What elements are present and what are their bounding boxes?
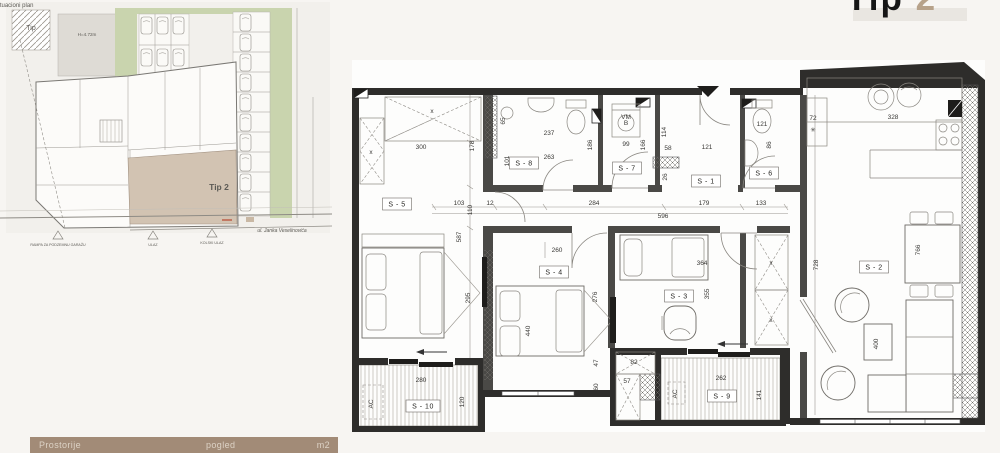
- dimension-label: 114: [661, 126, 668, 137]
- dimension-label: 26: [662, 173, 669, 181]
- svg-text:S - 1: S - 1: [697, 179, 714, 186]
- room-label-s9: S - 9: [708, 390, 737, 402]
- dimension-label: 72: [809, 115, 817, 122]
- dimension-label: 766: [915, 244, 922, 255]
- tip2-unit-label: Tip 2: [209, 182, 229, 192]
- dimension-label: 276: [592, 291, 599, 302]
- room-label-s7: S - 7: [613, 162, 642, 174]
- height-note: H=4.72m: [78, 32, 97, 37]
- dimension-label: 178: [469, 140, 476, 151]
- dimension-label: 47: [593, 359, 600, 367]
- dimension-label: 99: [622, 141, 630, 148]
- dimension-label: 133: [756, 200, 767, 207]
- tv-icon: [482, 257, 487, 307]
- parcel-label: Tip: [26, 25, 36, 32]
- legend-label-gate: KOLSKI ULAZ: [200, 241, 224, 245]
- dimension-label: ✳: [810, 126, 816, 134]
- neighbor-building: H=4.72m: [58, 14, 116, 76]
- svg-text:S - 9: S - 9: [713, 394, 730, 401]
- hatched-parcel: Tip: [12, 10, 50, 50]
- dimension-label: 57: [623, 378, 631, 385]
- room-label-s3: S - 3: [665, 290, 694, 302]
- site-plan-title: Situacioni plan: [0, 3, 34, 9]
- dimension-label: 237: [544, 130, 555, 137]
- armchair-2: [821, 366, 855, 400]
- dimension-label: 179: [699, 200, 710, 207]
- dimension-label: 186: [587, 139, 594, 150]
- room-label-s2: S - 2: [860, 261, 889, 273]
- svg-text:S - 7: S - 7: [618, 166, 635, 173]
- dimension-label: 328: [888, 114, 899, 121]
- room-label-s5: S - 5: [383, 198, 412, 210]
- dimension-label: 587: [456, 231, 463, 242]
- dimension-label: 295: [465, 292, 472, 303]
- svg-text:S - 2: S - 2: [865, 265, 882, 272]
- apartment-plan: 300xx17865101237263186VMB991661145826121…: [352, 60, 985, 432]
- building-footprint: Tip 2: [36, 62, 238, 228]
- parking-right: [233, 12, 270, 216]
- parking-left: [139, 14, 189, 76]
- dimension-label: 263: [544, 154, 555, 161]
- room-table-header: Prostorije pogled m2: [30, 437, 338, 453]
- svg-text:S - 4: S - 4: [545, 270, 562, 277]
- table-header-rooms: Prostorije: [39, 440, 81, 450]
- dimension-label: AC: [672, 389, 679, 398]
- dimension-label: 86: [766, 141, 773, 149]
- legend-label-entrance: ULAZ: [148, 243, 158, 247]
- single-bed: [620, 235, 708, 280]
- dimension-label: 596: [658, 213, 669, 220]
- room-label-s8: S - 8: [510, 157, 539, 169]
- dimension-label: 141: [756, 389, 763, 400]
- svg-text:S - 3: S - 3: [670, 294, 687, 301]
- svg-text:S - 8: S - 8: [515, 161, 532, 168]
- dimension-label: 60: [593, 383, 600, 391]
- terrace-s10-floor: [358, 365, 478, 426]
- double-bed: [362, 248, 444, 338]
- dimension-label: 284: [589, 200, 600, 207]
- dimension-label: 166: [640, 139, 647, 150]
- dimension-label: 262: [716, 375, 727, 382]
- dimension-label: 300: [416, 144, 427, 151]
- legend-label-garage: RAMPA ZA PODZEMNU GARAŽU: [30, 242, 86, 247]
- drawing-canvas: Situacioni plan Tip H=4.72m: [0, 0, 1000, 453]
- dimension-label: 440: [525, 325, 532, 336]
- site-plan: Situacioni plan Tip H=4.72m: [0, 2, 332, 247]
- dimension-label: 110: [467, 204, 474, 215]
- dimension-label: 12: [486, 200, 494, 207]
- dimension-label: 58: [664, 145, 672, 152]
- page-title-main: Tip: [846, 0, 904, 18]
- street-name: ul. Janka Veselinovića: [257, 228, 307, 234]
- dimension-label: AC: [368, 399, 375, 408]
- dimension-label: 121: [757, 121, 768, 128]
- party-wall: [962, 85, 978, 418]
- desk-chair-icon: [662, 306, 696, 340]
- room-label-s4: S - 4: [540, 266, 569, 278]
- page-title-accent: 2: [916, 0, 937, 18]
- street-marker: [246, 217, 254, 222]
- terrace-s9-floor: [661, 358, 780, 420]
- dimension-label: 364: [697, 260, 708, 267]
- dimension-label: 65: [500, 117, 507, 125]
- room-label-s6: S - 6: [750, 167, 779, 179]
- floor-plan-sheet: Tip 2 Situacioni plan: [0, 0, 1000, 453]
- armchair-1: [835, 288, 869, 322]
- dimension-label: 260: [552, 247, 563, 254]
- dimension-label: 103: [454, 200, 465, 207]
- dimension-label: 728: [813, 259, 820, 270]
- room-label-s1: S - 1: [692, 175, 721, 187]
- table-header-view: pogled: [206, 440, 235, 450]
- room-label-s10: S - 10: [406, 400, 440, 412]
- table-header-area: m2: [317, 440, 330, 450]
- svg-text:S - 6: S - 6: [755, 171, 772, 178]
- dimension-label: 120: [459, 396, 466, 407]
- dimension-label: 82: [630, 359, 638, 366]
- dimension-label: 355: [704, 288, 711, 299]
- svg-text:S - 5: S - 5: [388, 202, 405, 209]
- svg-text:S - 10: S - 10: [412, 404, 434, 411]
- page-title: Tip 2: [846, 0, 937, 19]
- dimension-label: 400: [873, 338, 880, 349]
- dimension-label: B: [624, 120, 628, 127]
- tv-icon-2: [610, 297, 616, 343]
- dimension-label: 280: [416, 377, 427, 384]
- dimension-label: 121: [702, 144, 713, 151]
